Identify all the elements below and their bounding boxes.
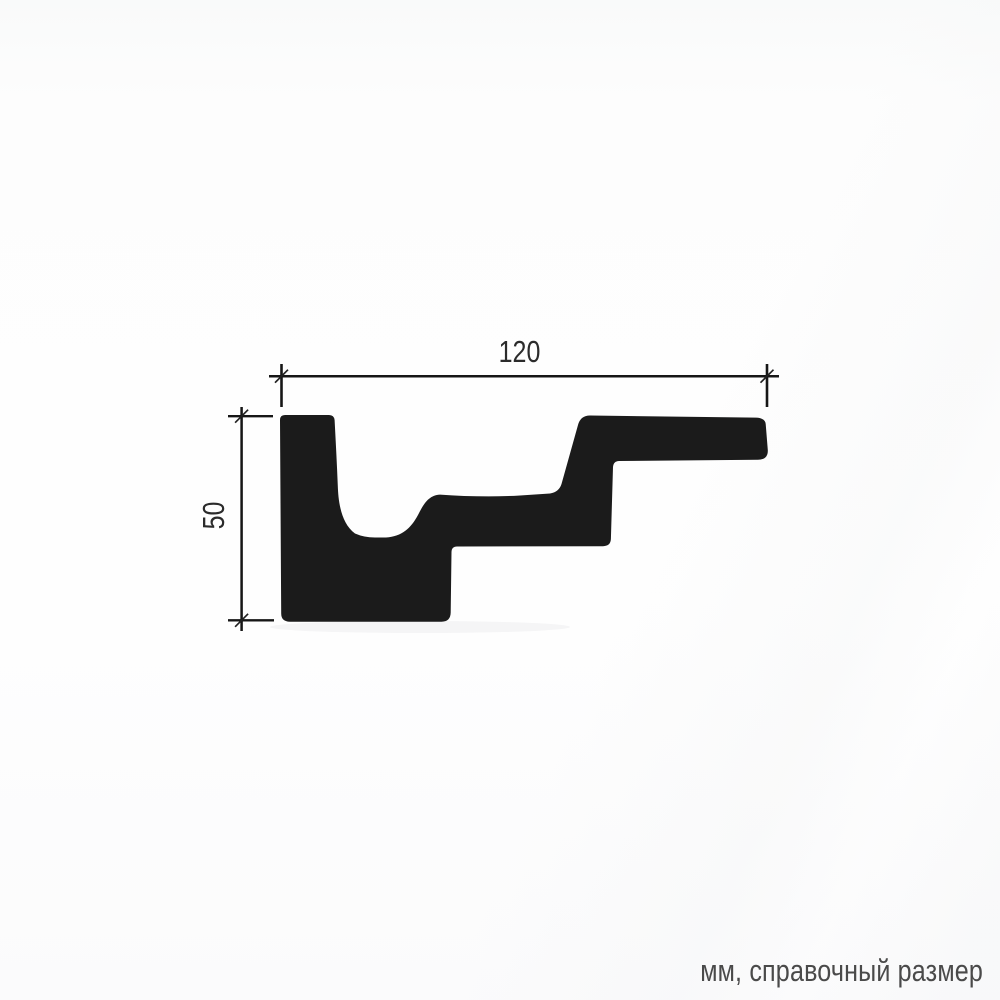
svg-text:50: 50	[197, 502, 231, 530]
svg-text:120: 120	[499, 335, 541, 369]
